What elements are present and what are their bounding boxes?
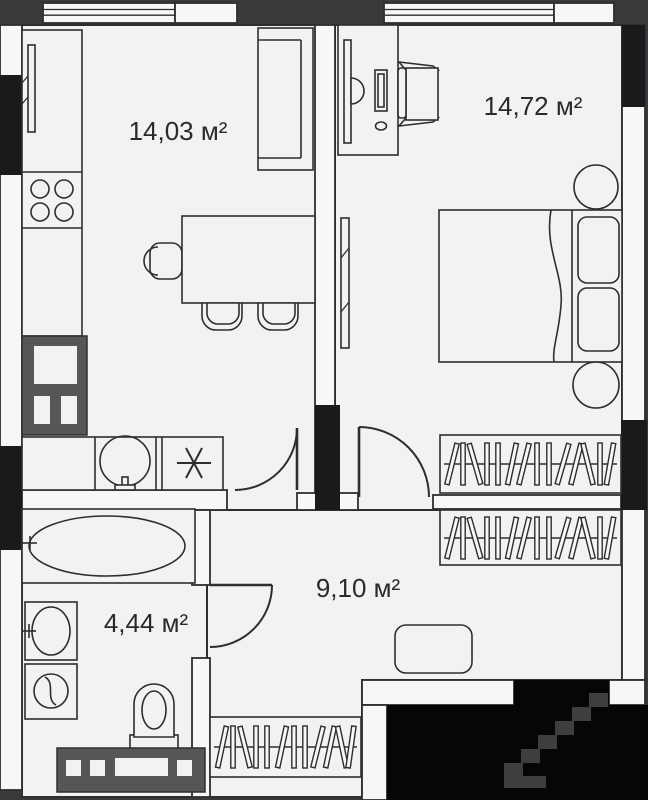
floor-plan: 14,03 м² 14,72 м² 9,10 м² 4,44 м² (0, 0, 648, 800)
wall-under-wardrobe (433, 495, 621, 509)
mouse-icon (376, 122, 387, 130)
window-kitchen (43, 3, 237, 23)
black-wall-right-mid (621, 420, 647, 510)
area-label-kitchen-living: 14,03 м² (129, 116, 228, 146)
sofa-icon (258, 28, 313, 170)
area-label-bathroom: 4,44 м² (104, 608, 189, 638)
bedside-lamp-icon (574, 165, 618, 209)
black-wall-center (315, 405, 340, 510)
pillow-icon (578, 217, 619, 283)
wall-right (622, 25, 645, 680)
wall-hall-south (362, 680, 514, 705)
wall-corridor-right (362, 705, 387, 800)
desk-icon (338, 25, 398, 155)
bedside-lamp-icon (573, 362, 619, 408)
toilet-icon (130, 684, 178, 749)
bed-icon (439, 210, 622, 362)
vent-shaft (22, 336, 87, 435)
bench-icon (395, 625, 472, 673)
washing-machine-icon (25, 664, 77, 719)
area-label-hallway: 9,10 м² (316, 573, 401, 603)
radiator-bedroom-icon (341, 218, 349, 348)
wardrobe-corridor-icon (210, 717, 361, 777)
bathtub-icon (22, 509, 195, 583)
bathroom-cabinet (57, 748, 205, 792)
floor-plan-page: 14,03 м² 14,72 м² 9,10 м² 4,44 м² (0, 0, 648, 800)
wall-kitchen-south (22, 490, 227, 510)
wall-entry-block (609, 680, 645, 705)
area-label-bedroom: 14,72 м² (484, 91, 583, 121)
window-bedroom (384, 3, 614, 23)
bathroom-sink-icon (22, 602, 77, 660)
wardrobe-bedroom-icon (440, 435, 621, 493)
pillow-icon (578, 288, 619, 351)
desk-chair-icon (398, 62, 438, 126)
black-wall-left-mid (0, 446, 22, 550)
wardrobe-hallway-icon (440, 510, 621, 565)
black-wall-right-top (622, 25, 645, 107)
